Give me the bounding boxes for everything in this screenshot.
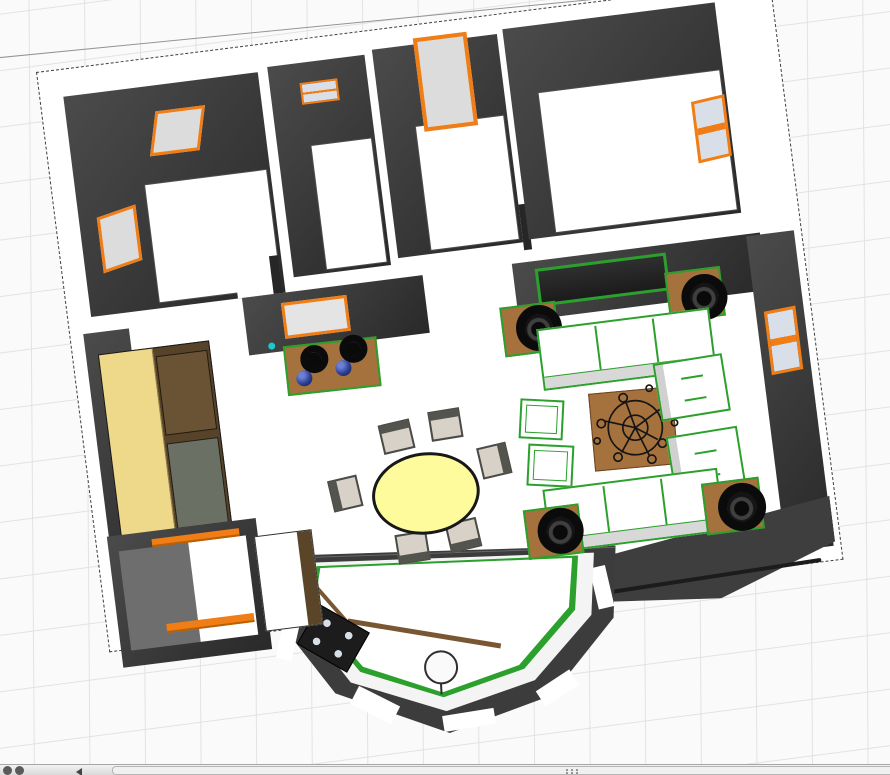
dining-chair[interactable] xyxy=(394,530,430,565)
decor-blue-sphere[interactable] xyxy=(335,359,353,377)
drawer-handle xyxy=(681,374,703,379)
bottom-scrollbar[interactable] xyxy=(0,764,890,775)
kitchen-bay[interactable] xyxy=(262,537,632,747)
room-third-floor xyxy=(416,116,519,250)
dining-chair[interactable] xyxy=(427,407,463,442)
roof-window[interactable] xyxy=(150,105,205,156)
tall-balcony-door[interactable] xyxy=(413,32,478,132)
circle-icon[interactable] xyxy=(3,766,12,775)
ottoman[interactable] xyxy=(519,398,565,440)
sofa-seam xyxy=(652,319,659,363)
kitchen-island-table[interactable] xyxy=(283,336,382,396)
sofa-seam xyxy=(660,479,668,525)
drawer-cabinet[interactable] xyxy=(653,353,731,421)
wardrobe-panel-top xyxy=(156,350,218,436)
drawer-handle xyxy=(695,449,717,454)
viewport-3d[interactable] xyxy=(0,0,890,775)
sofa-seam xyxy=(602,486,610,532)
scrollbar-track[interactable] xyxy=(112,766,890,775)
circle-icon[interactable] xyxy=(15,766,24,775)
scrollbar-grip-icon[interactable] xyxy=(565,769,579,774)
decor-blue-sphere[interactable] xyxy=(296,369,314,387)
small-top-window[interactable] xyxy=(299,78,339,105)
ottoman[interactable] xyxy=(526,444,574,488)
sofa-seam xyxy=(594,326,601,370)
drawer-handle xyxy=(685,396,707,401)
wardrobe-panel-mid xyxy=(167,437,229,529)
model-world xyxy=(36,0,843,652)
terrace-floor-gray xyxy=(119,543,201,651)
scroll-left-arrow-icon[interactable] xyxy=(76,768,82,775)
fridge-cabinet[interactable] xyxy=(254,529,324,632)
